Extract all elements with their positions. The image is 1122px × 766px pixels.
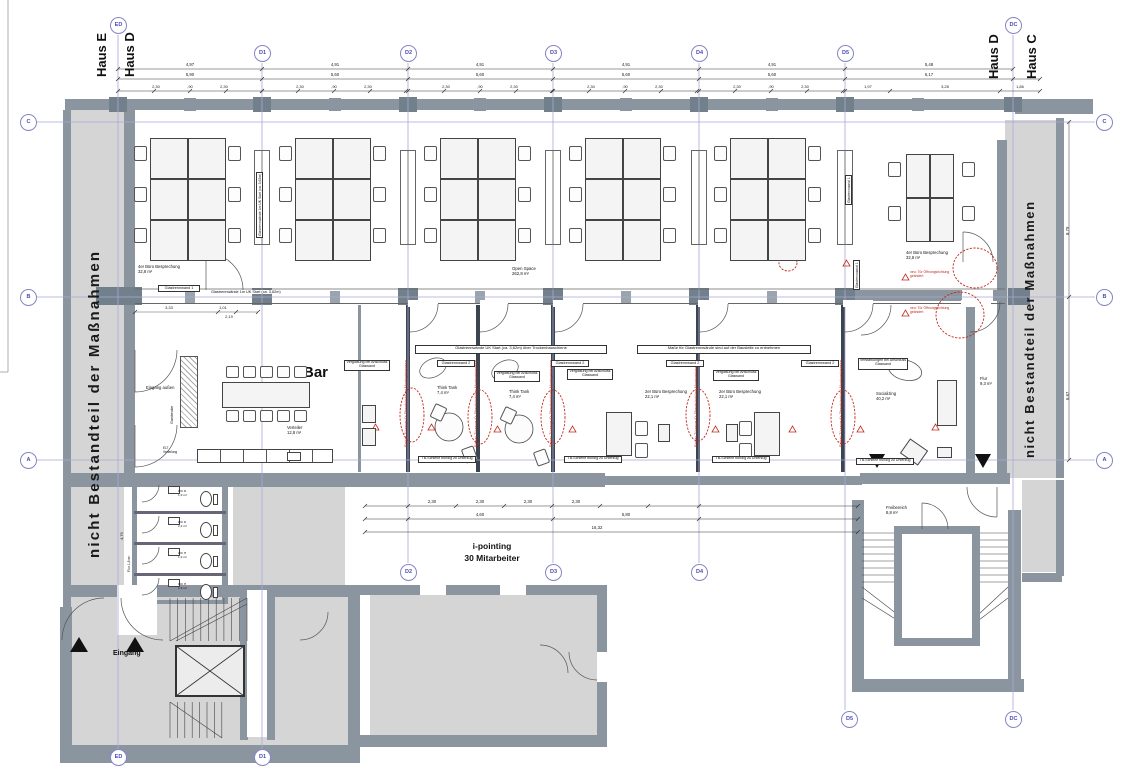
desk (623, 138, 661, 179)
room-label-freibereich: Freibereich 8,8 m² (886, 505, 907, 515)
grid-bubble-D1: D1 (254, 45, 271, 62)
room-label-buero4: 4er Büro Besprechung 32,8 m² (906, 250, 948, 260)
cabinet (937, 380, 957, 426)
desk (333, 179, 371, 220)
desk (768, 179, 806, 220)
room-label-buero2: 2er Büro Besprechung 22,1 m² (719, 389, 761, 399)
open-space-label: Open Space 262,8 m² (512, 266, 536, 276)
haus-label-c: Haus C (1024, 34, 1039, 79)
desk (478, 138, 516, 179)
chair (888, 162, 901, 177)
chair (663, 228, 676, 243)
grid-bubble-D4: D4 (691, 45, 708, 62)
desk (730, 220, 768, 261)
dim-label: ,90 (317, 84, 351, 89)
dim-label: 16,32 (580, 525, 614, 530)
bar-table (222, 382, 310, 408)
grid-bubble-DC: DC (1005, 17, 1022, 34)
i-pointing-label: i-pointing (432, 541, 552, 551)
chair (569, 146, 582, 161)
desk (440, 138, 478, 179)
desk (440, 220, 478, 261)
dim-label: 2,30 (463, 499, 497, 504)
grid-bubble-ED: ED (110, 17, 127, 34)
tuerzarge-note: Einbau Türzarge für Überströmklima Monta… (694, 360, 698, 447)
desk (478, 179, 516, 220)
verstaerkung-label: Verstärkungen bei Anschluss Glaswand (858, 358, 908, 370)
dim-label: ,90 (173, 84, 207, 89)
wc-toilet (200, 491, 212, 507)
dim-label: 2,30 (351, 84, 385, 89)
chair (518, 187, 531, 202)
desk (623, 179, 661, 220)
chair (277, 410, 290, 422)
floor-plan-canvas: nicht Bestandteil der Maßnahmen nicht Be… (0, 0, 1122, 766)
wc-label: WC D 2,2 m² (178, 521, 187, 528)
chair (888, 206, 901, 221)
chair (294, 366, 307, 378)
chair (714, 228, 727, 243)
dim-label-left-wc: 4,79 (119, 532, 124, 540)
tb-schiene-label: TB-Schiene bündig zu Unterzug (712, 456, 770, 463)
grid-bubble-D1: D1 (254, 749, 271, 766)
dim-label: 4,97 (173, 62, 207, 67)
dim-label: 5,60 (318, 72, 352, 77)
chair (962, 206, 975, 221)
chair (134, 228, 147, 243)
desk (295, 138, 333, 179)
glastrennwand-label-vertical: Glastrennwand 1 (845, 175, 852, 205)
grid-bubble-ED: ED (110, 749, 127, 766)
chair (279, 187, 292, 202)
haus-label-e: Haus E (94, 33, 109, 77)
room-label-buero2: 2er Büro Besprechung 22,1 m² (645, 389, 687, 399)
desk (768, 220, 806, 261)
revision-note: neu: Tür Öffnungsrichtung geändert (910, 271, 952, 279)
dim-label: 2,30 (207, 84, 241, 89)
desk (585, 220, 623, 261)
room-label-eingang-aussen: Eingang außen (146, 385, 174, 390)
tuerzarge-note: Einbau Türzarge für Überströmklima Monta… (839, 360, 843, 447)
chair (277, 366, 290, 378)
dim-label: 4,91 (318, 62, 352, 67)
desk (333, 138, 371, 179)
grid-bubble-A: A (1096, 452, 1113, 469)
grid-bubble-DC: DC (1005, 711, 1022, 728)
excluded-band-label-right: nicht Bestandteil der Maßnahmen (1022, 200, 1037, 458)
axis-panel (691, 150, 707, 245)
dim-label: 3,33 (152, 305, 186, 310)
haus-label-d-right: Haus D (986, 34, 1001, 79)
chair (260, 366, 273, 378)
room-label-socializing: Socializing 40,2 m² (876, 391, 896, 401)
dim-label: ,90 (754, 84, 788, 89)
tuerzarge-note: Einbau Türzarge für Überströmklima Monta… (404, 360, 408, 447)
grid-bubble-D3: D3 (545, 564, 562, 581)
eingang-label: Eingang (113, 650, 141, 657)
tuerzarge-note: Einbau Türzarge für Überströmklima Monta… (474, 360, 478, 447)
desk (188, 179, 226, 220)
desk (585, 179, 623, 220)
chair (279, 228, 292, 243)
desk (906, 198, 930, 242)
wc-label: WC H 1,9 m² (178, 583, 187, 590)
dim-label: 1,97 (851, 84, 885, 89)
desk (295, 179, 333, 220)
dim-label: 4,91 (463, 62, 497, 67)
dim-label: 2,30 (415, 499, 449, 504)
sideboard (658, 424, 670, 442)
verglasung-label: Verglasung bei Anschluss Glaswand (567, 369, 613, 380)
chair (569, 228, 582, 243)
desk (623, 220, 661, 261)
chair (808, 228, 821, 243)
wc-cistern (213, 525, 218, 536)
chair (569, 187, 582, 202)
desk (188, 220, 226, 261)
sideboard (726, 424, 738, 442)
dim-label: 2,30 (429, 84, 463, 89)
bar-counter (197, 449, 333, 463)
chair (226, 366, 239, 378)
verglasung-label: Verglasung bei Anschluss Glaswand (494, 371, 540, 382)
chair (663, 187, 676, 202)
glastrennwand-label-vertical: Glastrennwand 1 (853, 260, 860, 290)
grid-bubble-C: C (1096, 114, 1113, 131)
dim-label: ,90 (608, 84, 642, 89)
wc-cistern (213, 587, 218, 598)
room-label-flur: Flur 9,3 m² (980, 376, 992, 386)
dim-label: 2,30 (574, 84, 608, 89)
dim-label: 1,01 (206, 305, 240, 310)
excluded-band-label-left: nicht Bestandteil der Maßnahmen (86, 250, 103, 558)
chair (714, 146, 727, 161)
desk (930, 198, 954, 242)
chair (663, 146, 676, 161)
desk (730, 138, 768, 179)
chair (243, 366, 256, 378)
chair (373, 228, 386, 243)
chair (533, 448, 550, 467)
chair (228, 228, 241, 243)
dim-label: 4,60 (463, 512, 497, 517)
chair (279, 146, 292, 161)
wc-toilet (200, 522, 212, 538)
desk (930, 154, 954, 198)
chair (808, 187, 821, 202)
grid-bubble-D3: D3 (545, 45, 562, 62)
dim-label: 3,28 (928, 84, 962, 89)
desk (906, 154, 930, 198)
tb-schiene-label: TB-Schiene bündig zu Unterzug (418, 456, 476, 463)
grid-bubble-D5: D5 (841, 711, 858, 728)
wc-cistern (213, 494, 218, 505)
dim-label: ,90 (463, 84, 497, 89)
desk (606, 412, 632, 456)
side-table (362, 405, 376, 423)
desk (478, 220, 516, 261)
grid-bubble-D2: D2 (400, 564, 417, 581)
chair (373, 187, 386, 202)
glastrennwand-label-vertical: Glastrennwände 1m UK Start (ca. 3,62m) (256, 172, 263, 238)
tuerzarge-note: Einbau Türzarge für Überströmklima Monta… (549, 360, 553, 447)
chair (635, 443, 648, 458)
axis-panel (545, 150, 561, 245)
grid-bubble-A: A (20, 452, 37, 469)
wc-label: WC H 1,9 m² (178, 552, 187, 559)
grid-bubble-D4: D4 (691, 564, 708, 581)
garderobe-cabinet (180, 356, 198, 428)
desk (730, 179, 768, 220)
chair (518, 146, 531, 161)
dim-label: 5,60 (609, 72, 643, 77)
chair (424, 228, 437, 243)
chair (294, 410, 307, 422)
dim-label: 1,86 (1003, 84, 1037, 89)
dim-label: 5,60 (755, 72, 789, 77)
dim-label: 4,91 (609, 62, 643, 67)
dim-label vrot: 8,79 (1065, 227, 1070, 235)
chair (635, 421, 648, 436)
open-space-area: 262,8 m² (512, 271, 536, 276)
grid-bubble-C: C (20, 114, 37, 131)
desk (585, 138, 623, 179)
haus-label-d-left: Haus D (122, 32, 137, 77)
chair (424, 187, 437, 202)
desk (150, 179, 188, 220)
tb-schiene-label: TB-Schiene bündig zu Unterzug (856, 458, 914, 465)
desk (295, 220, 333, 261)
glastrennwand-label: Glastrennwand 2 (551, 360, 589, 367)
chair (226, 410, 239, 422)
room-label-think-tank: Think Tank 7,4 m² (509, 389, 529, 399)
banner-note: Glastrennwände UK Start (ca. 3,62m) über… (415, 345, 607, 354)
banner-note: Maße für Glastrennwände sind auf der Bau… (637, 345, 811, 354)
glastrennwand-label: Glastrennwand 2 (437, 360, 475, 367)
dim-label: 5,90 (173, 72, 207, 77)
room-label-verteiler: Verteiler 12,8 m² (287, 425, 302, 435)
chair (429, 403, 447, 422)
wc-cistern (213, 556, 218, 567)
dim-label: 2,30 (788, 84, 822, 89)
glastrennwand-label: Glastrennwand 2 (801, 360, 839, 367)
room-label-elt: ELT Verteilung (163, 447, 185, 454)
verglasung-label: Verglasung bei Anschluss Glaswand (713, 370, 759, 381)
chair (499, 406, 517, 425)
grid-bubble-D2: D2 (400, 45, 417, 62)
wc-label: WC D 1,9 m² (178, 490, 187, 497)
desk (768, 138, 806, 179)
dim-label: 6,17 (912, 72, 946, 77)
chair (373, 146, 386, 161)
room-label-buero4: 4er Büro Besprechung 32,8 m² (138, 264, 180, 274)
glastrennwand-label: Glastrennwand 2 (666, 360, 704, 367)
desk (150, 220, 188, 261)
desk (754, 412, 780, 456)
desk (440, 179, 478, 220)
desk (150, 138, 188, 179)
chair (518, 228, 531, 243)
flur-wc-label: Flur 1,8 m² (127, 556, 131, 572)
dim-label: 5,80 (609, 512, 643, 517)
room-label-think-tank: Think Tank 7,4 m² (437, 385, 457, 395)
dim-label: 5,60 (463, 72, 497, 77)
grid-bubble-B: B (20, 289, 37, 306)
dim-label: 4,91 (755, 62, 789, 67)
chair (739, 421, 752, 436)
grid-bubble-D5: D5 (837, 45, 854, 62)
dim-label: 2,30 (720, 84, 754, 89)
mitarbeiter-label: 30 Mitarbeiter (432, 553, 552, 563)
dim-label vrot: 6,67 (1065, 392, 1070, 400)
revision-note: neu: Tür Öffnungsrichtung geändert (910, 307, 952, 315)
furniture-labels-layer: nicht Bestandteil der Maßnahmen nicht Be… (0, 0, 1122, 766)
wc-toilet (200, 584, 212, 600)
dim-label: 2,30 (559, 499, 593, 504)
sink (287, 452, 301, 461)
chair (260, 410, 273, 422)
grid-bubble-B: B (1096, 289, 1113, 306)
axis-panel (400, 150, 416, 245)
dim-label: 2,19 (212, 314, 246, 319)
chair (243, 410, 256, 422)
corridor-note: Glastrennwände 1m UK Start (ca. 3,62m) (210, 290, 282, 294)
chair (808, 146, 821, 161)
chair (962, 162, 975, 177)
verglasung-label: Verglasung bei Anschluss Glaswand (344, 360, 390, 371)
chair (714, 187, 727, 202)
chair (228, 187, 241, 202)
coffee-table (937, 447, 952, 458)
dim-label: 2,30 (283, 84, 317, 89)
dim-label: 2,30 (497, 84, 531, 89)
chair (134, 146, 147, 161)
room-label-garderobe: Garderobe (170, 406, 174, 424)
tb-schiene-label: TB-Schiene bündig zu Unterzug (564, 456, 622, 463)
glastrennwand-label: Glastrennwand 1 (158, 285, 200, 292)
desk (333, 220, 371, 261)
chair (228, 146, 241, 161)
wc-toilet (200, 553, 212, 569)
dim-label: 5,48 (912, 62, 946, 67)
chair (134, 187, 147, 202)
chair (424, 146, 437, 161)
desk (188, 138, 226, 179)
dim-label: 2,30 (642, 84, 676, 89)
side-table (362, 428, 376, 446)
dim-label: 2,30 (511, 499, 545, 504)
dim-label: 2,30 (139, 84, 173, 89)
